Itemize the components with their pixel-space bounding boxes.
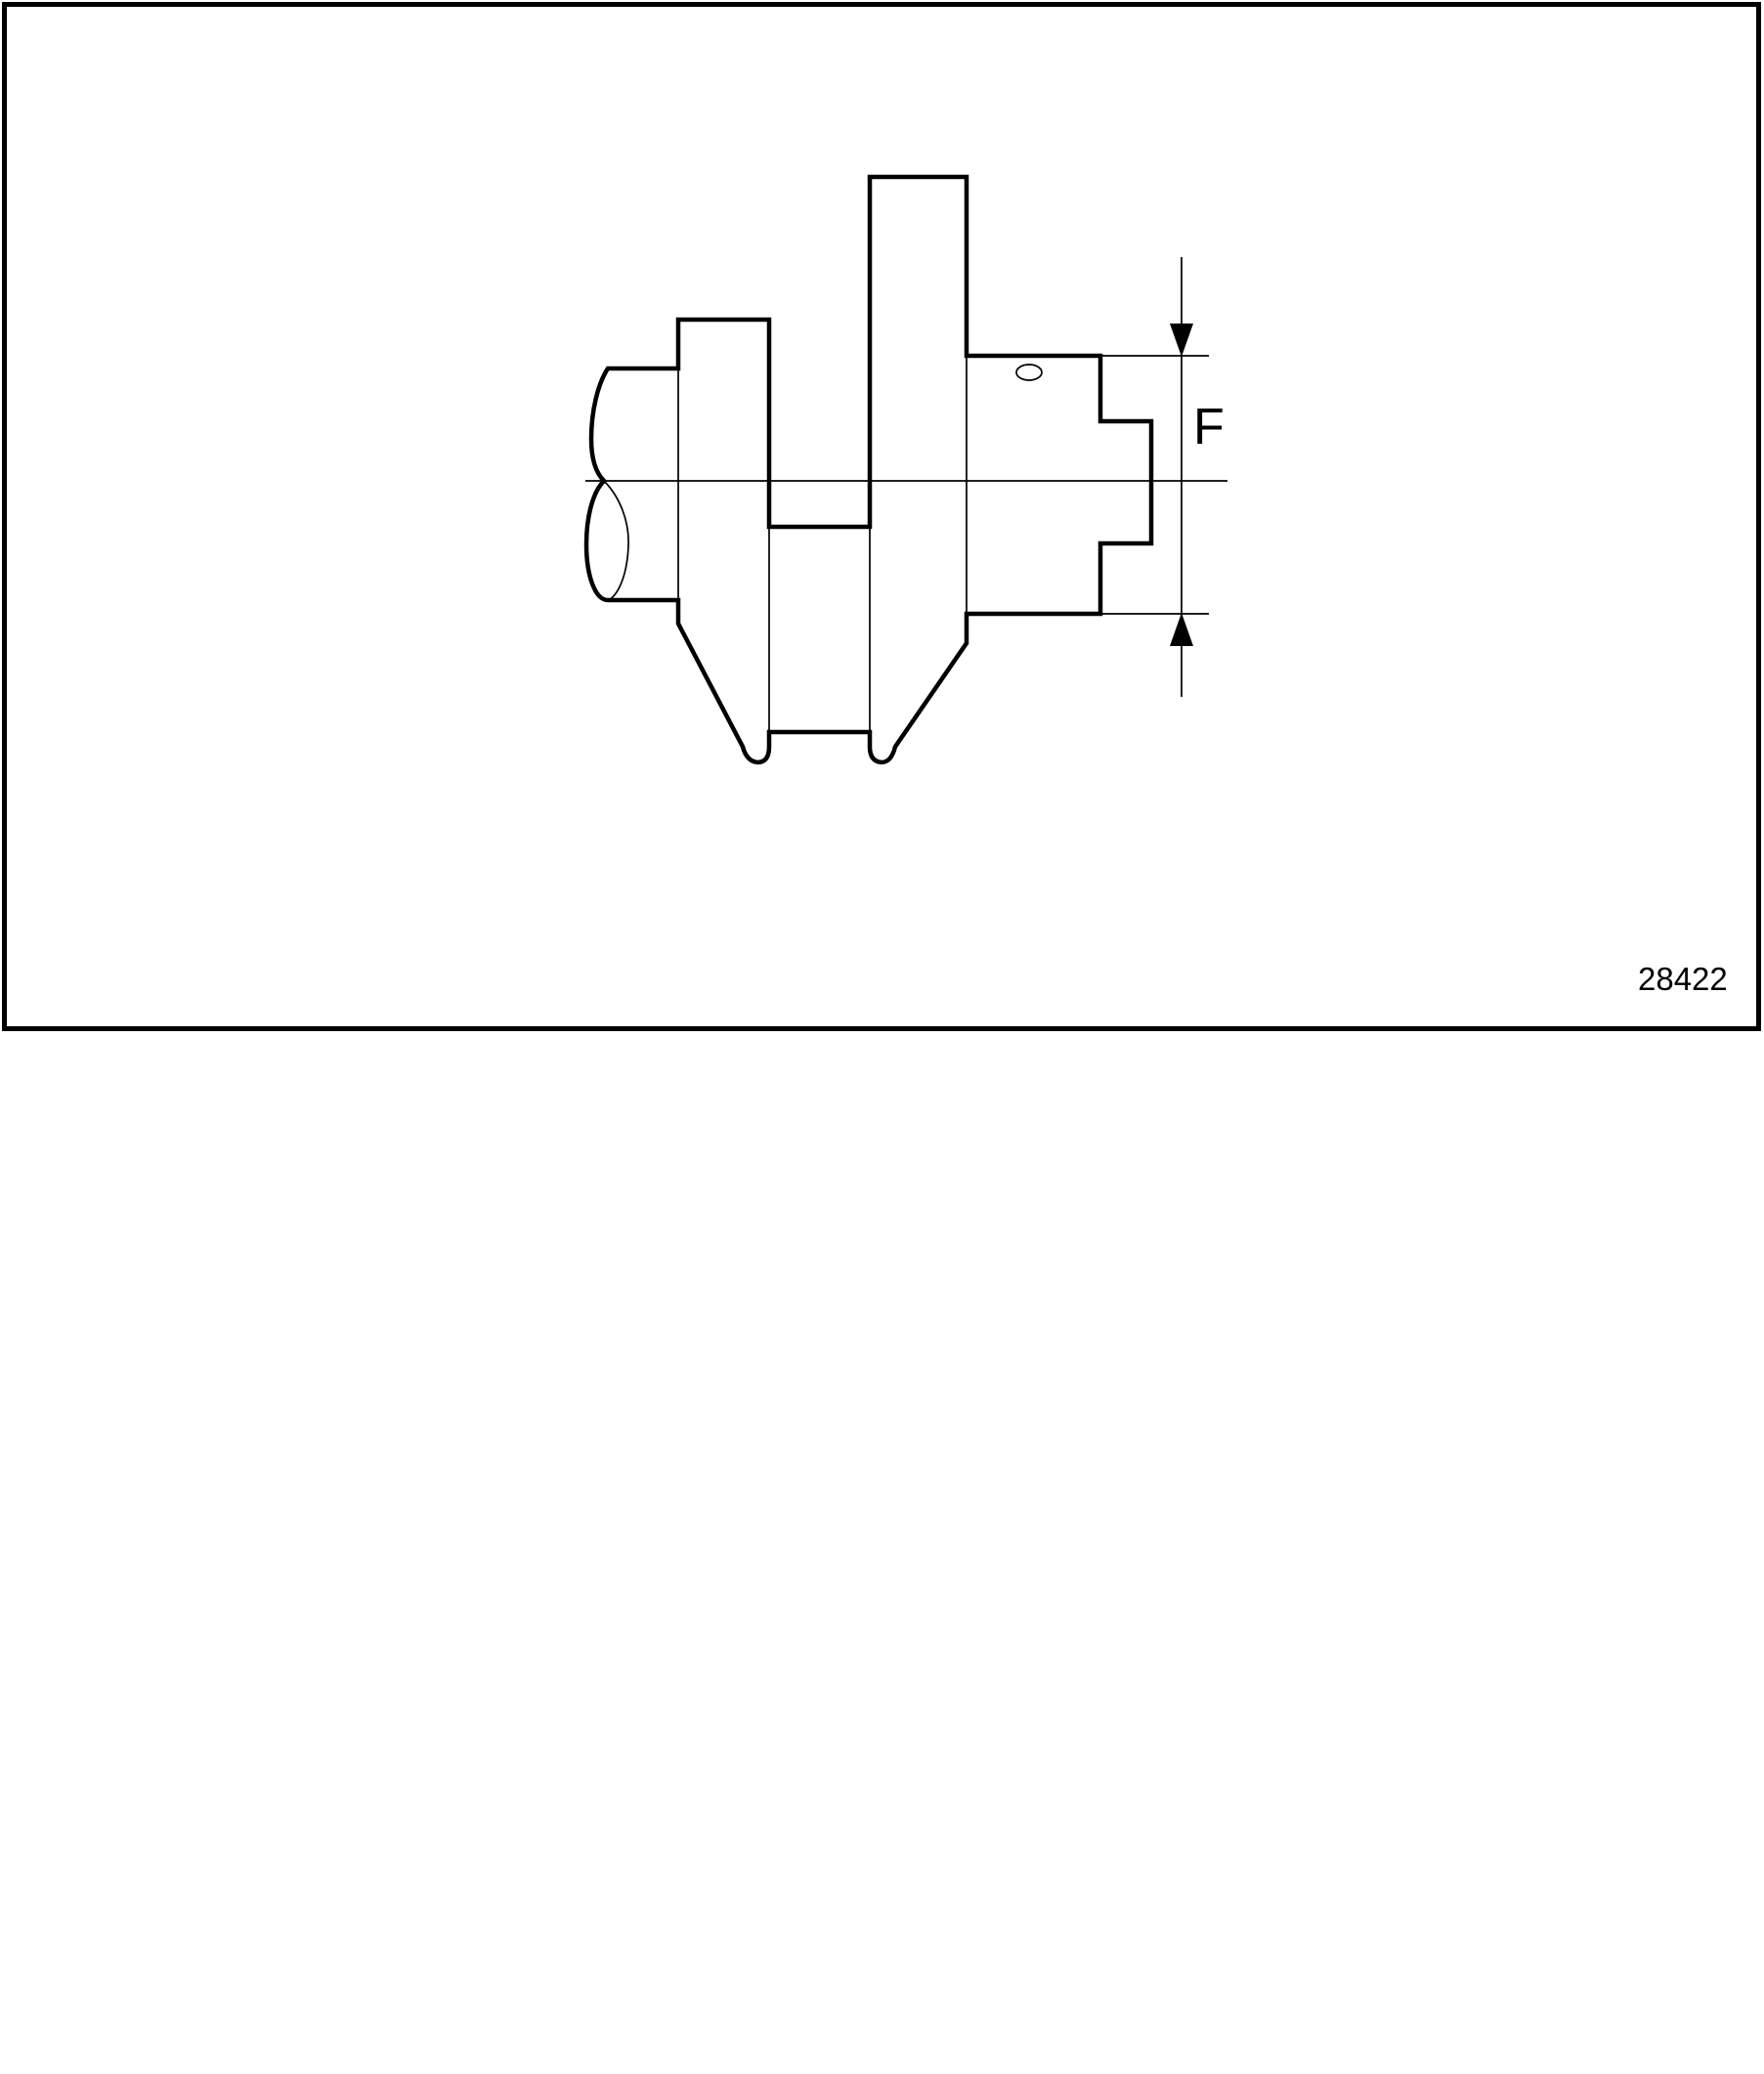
arrowhead-down-icon (1170, 324, 1193, 357)
figure-border (5, 5, 1759, 1029)
shaft-break-line (604, 481, 628, 600)
oil-hole-icon (1016, 365, 1042, 380)
figure-number: 28422 (1638, 961, 1728, 997)
arrowhead-up-icon (1170, 613, 1193, 646)
crankshaft-outline (586, 177, 1151, 762)
crankshaft-section-diagram: F 28422 (0, 0, 1764, 1036)
dimension-label: F (1193, 399, 1225, 455)
figure-container: F 28422 (0, 0, 1764, 1036)
crankshaft-drawing (585, 177, 1227, 762)
dimension-f: F (1102, 257, 1225, 697)
